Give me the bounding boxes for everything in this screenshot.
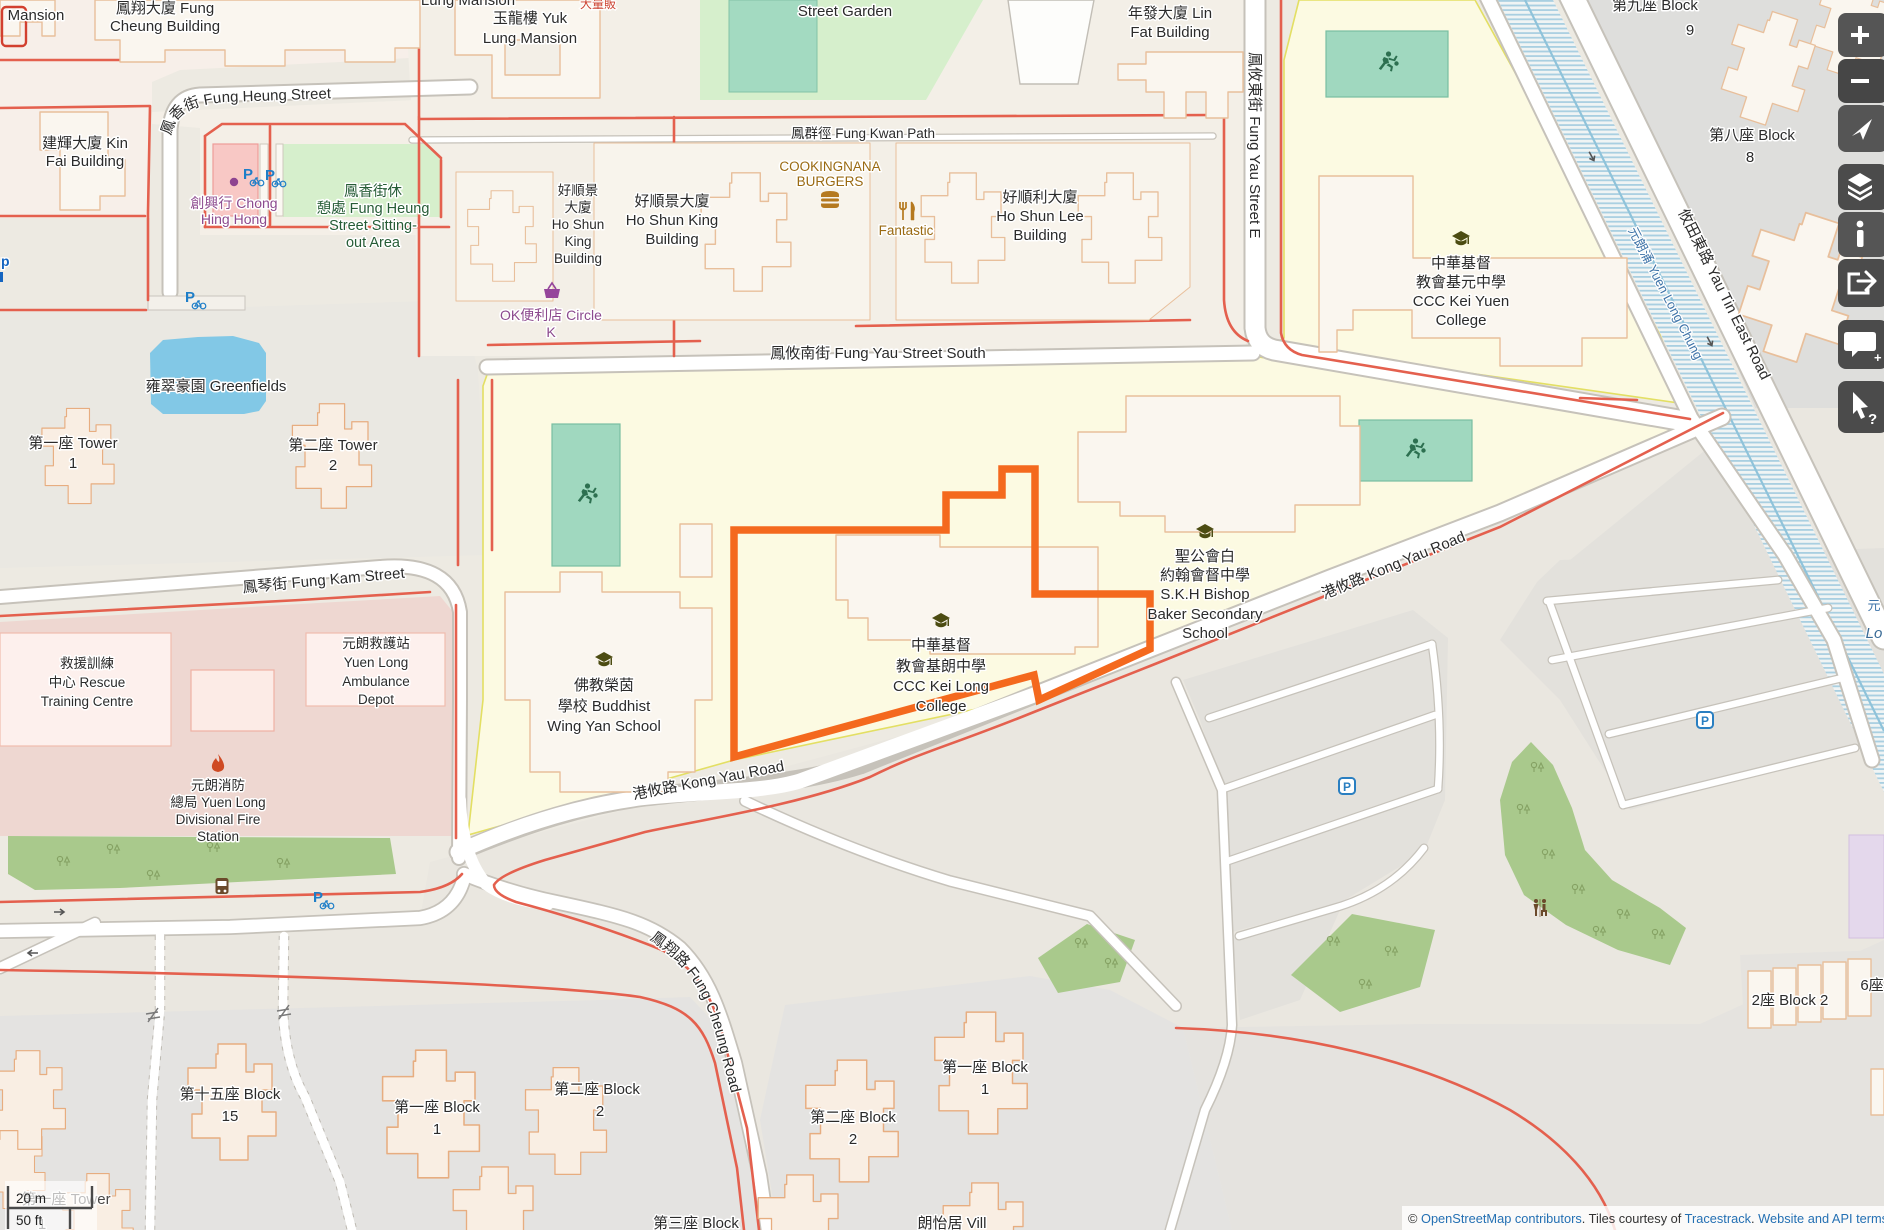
svg-text:總局 Yuen Long: 總局 Yuen Long	[170, 794, 265, 810]
svg-text:第八座 Block: 第八座 Block	[1709, 126, 1795, 144]
svg-text:King: King	[564, 234, 591, 249]
svg-text:Yuen Long: Yuen Long	[344, 655, 409, 670]
svg-text:鳳群徑 Fung Kwan Path: 鳳群徑 Fung Kwan Path	[791, 126, 935, 141]
svg-text:Fai Building: Fai Building	[46, 153, 124, 170]
svg-text:第二座 Block: 第二座 Block	[554, 1080, 640, 1098]
svg-text:2: 2	[596, 1103, 604, 1120]
svg-text:Divisional Fire: Divisional Fire	[176, 812, 261, 827]
svg-text:學校 Buddhist: 學校 Buddhist	[558, 697, 651, 715]
svg-text:元: 元	[1867, 598, 1880, 613]
svg-text:© OpenStreetMap contributors.: © OpenStreetMap contributors. Tiles cour…	[1408, 1211, 1884, 1226]
svg-text:鳳攸南街 Fung Yau Street South: 鳳攸南街 Fung Yau Street South	[770, 345, 985, 362]
svg-text:朗怡居 Vill: 朗怡居 Vill	[918, 1215, 987, 1230]
svg-text:鳳香街休: 鳳香街休	[344, 183, 402, 200]
svg-text:年發大廈 Lin: 年發大廈 Lin	[1128, 4, 1212, 22]
svg-text:Fat Building: Fat Building	[1130, 24, 1209, 41]
svg-text:BURGERS: BURGERS	[797, 174, 864, 189]
svg-text:1: 1	[69, 455, 77, 472]
svg-text:第一座 Block: 第一座 Block	[394, 1098, 480, 1116]
svg-text:Hing Hong: Hing Hong	[201, 211, 267, 227]
svg-text:College: College	[916, 698, 967, 715]
svg-text:教會基朗中學: 教會基朗中學	[896, 657, 986, 675]
svg-text:Fantastic: Fantastic	[879, 223, 934, 238]
svg-text:8: 8	[1746, 149, 1754, 166]
svg-text:大量販: 大量販	[580, 0, 616, 11]
svg-text:Building: Building	[1013, 227, 1066, 244]
svg-text:CCC Kei Long: CCC Kei Long	[893, 678, 989, 695]
svg-text:中華基督: 中華基督	[911, 637, 971, 654]
svg-text:Station: Station	[197, 829, 239, 844]
svg-text:中心 Rescue: 中心 Rescue	[49, 675, 126, 690]
svg-text:COOKINGNANA: COOKINGNANA	[779, 159, 880, 174]
svg-text:Wing Yan School: Wing Yan School	[547, 718, 661, 735]
svg-text:2: 2	[329, 457, 337, 474]
svg-text:第二座 Block: 第二座 Block	[810, 1108, 896, 1126]
svg-text:元朗消防: 元朗消防	[191, 778, 245, 793]
svg-text:好順景: 好順景	[558, 183, 599, 198]
svg-text:中華基督: 中華基督	[1431, 255, 1491, 272]
svg-text:College: College	[1436, 312, 1487, 329]
svg-text:雍翠豪園 Greenfields: 雍翠豪園 Greenfields	[146, 377, 287, 395]
svg-text:50 ft: 50 ft	[16, 1213, 43, 1228]
svg-text:第九座 Block: 第九座 Block	[1612, 0, 1698, 14]
svg-text:9: 9	[1686, 22, 1694, 39]
svg-text:2座 Block 2: 2座 Block 2	[1752, 992, 1829, 1009]
svg-text:佛教榮茵: 佛教榮茵	[574, 677, 634, 694]
svg-text:第三座 Block: 第三座 Block	[653, 1214, 739, 1230]
svg-text:Ho Shun: Ho Shun	[552, 217, 605, 232]
svg-text:K: K	[546, 324, 556, 340]
svg-text:p: p	[1, 253, 10, 269]
svg-text:鳳攸東街 Fung Yau Street E: 鳳攸東街 Fung Yau Street E	[1246, 52, 1263, 238]
svg-text:out Area: out Area	[346, 235, 401, 251]
svg-text:CCC Kei Yuen: CCC Kei Yuen	[1413, 293, 1509, 310]
svg-text:Baker Secondary: Baker Secondary	[1147, 606, 1263, 623]
svg-text:1: 1	[981, 1081, 989, 1098]
svg-text:好順景大廈: 好順景大廈	[634, 192, 709, 210]
svg-text:6座: 6座	[1860, 977, 1883, 994]
svg-text:S.K.H Bishop: S.K.H Bishop	[1160, 586, 1249, 603]
svg-text:第十五座 Block: 第十五座 Block	[180, 1085, 281, 1103]
svg-text:15: 15	[222, 1108, 239, 1125]
svg-text:第一座 Block: 第一座 Block	[942, 1058, 1028, 1076]
svg-text:創興行 Chong: 創興行 Chong	[190, 195, 277, 211]
svg-text:建輝大廈 Kin: 建輝大廈 Kin	[42, 134, 128, 152]
svg-text:憩處 Fung Heung: 憩處 Fung Heung	[317, 200, 430, 217]
svg-text:Training Centre: Training Centre	[41, 694, 134, 709]
svg-text:OK便利店 Circle: OK便利店 Circle	[500, 307, 602, 323]
svg-text:教會基元中學: 教會基元中學	[1416, 273, 1506, 291]
svg-text:約翰會督中學: 約翰會督中學	[1160, 566, 1250, 584]
svg-text:聖公會白: 聖公會白	[1175, 548, 1235, 565]
svg-text:第二座 Tower: 第二座 Tower	[288, 436, 377, 454]
svg-text:1: 1	[433, 1121, 441, 1138]
svg-text:Street Sitting-: Street Sitting-	[329, 218, 417, 234]
svg-text:20 m: 20 m	[16, 1191, 46, 1206]
svg-text:鳳翔大廈 Fung: 鳳翔大廈 Fung	[116, 0, 214, 17]
svg-text:+: +	[1874, 350, 1882, 365]
svg-text:好順利大廈: 好順利大廈	[1002, 188, 1077, 206]
svg-text:Lo: Lo	[1866, 625, 1883, 642]
svg-text:救援訓練: 救援訓練	[60, 656, 114, 671]
svg-text:School: School	[1182, 625, 1228, 642]
svg-text:Depot: Depot	[358, 692, 394, 707]
svg-text:Mansion: Mansion	[8, 7, 65, 24]
svg-text:Street Garden: Street Garden	[798, 3, 892, 20]
svg-text:Lung Mansion: Lung Mansion	[483, 30, 577, 47]
svg-text:大廈: 大廈	[565, 199, 592, 215]
svg-text:Ho Shun King: Ho Shun King	[626, 212, 719, 229]
svg-text:Ho Shun Lee: Ho Shun Lee	[996, 208, 1084, 225]
svg-text:Ambulance: Ambulance	[342, 674, 410, 689]
svg-text:Building: Building	[554, 251, 602, 266]
svg-text:?: ?	[1868, 411, 1877, 428]
svg-text:2: 2	[849, 1131, 857, 1148]
svg-text:Building: Building	[645, 231, 698, 248]
svg-text:Lung Mansion: Lung Mansion	[421, 0, 515, 9]
svg-text:第一座 Tower: 第一座 Tower	[28, 434, 117, 452]
svg-text:元朗救護站: 元朗救護站	[342, 636, 410, 651]
svg-text:玉龍樓 Yuk: 玉龍樓 Yuk	[493, 10, 568, 27]
svg-text:Cheung Building: Cheung Building	[110, 18, 220, 35]
